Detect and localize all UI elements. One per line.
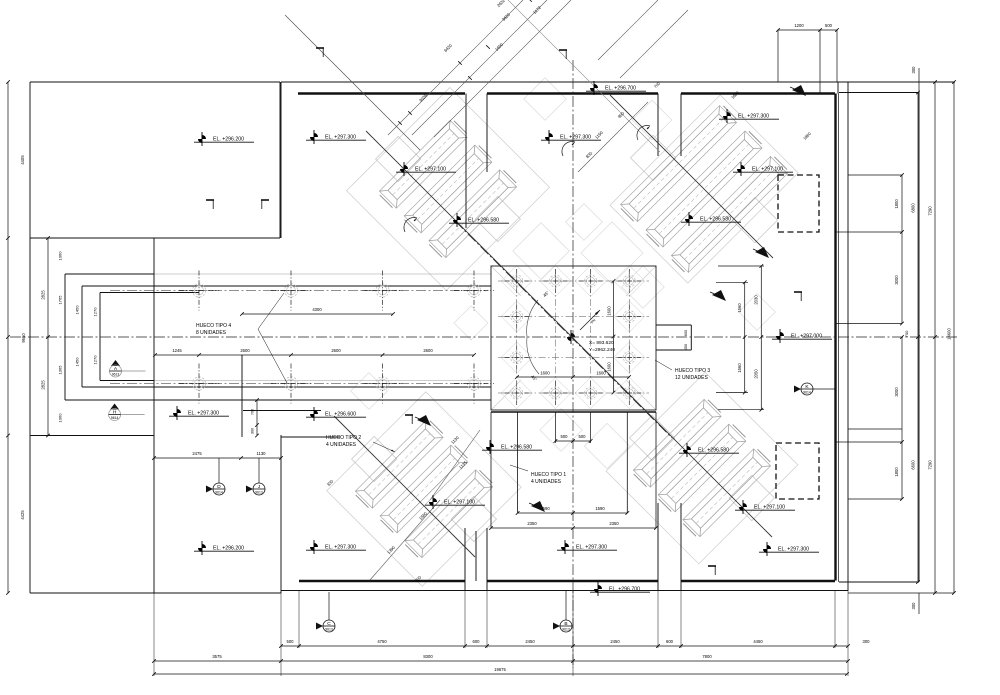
svg-text:3575: 3575 bbox=[212, 654, 222, 659]
svg-text:EL. +297.300: EL. +297.300 bbox=[778, 546, 809, 552]
svg-text:600: 600 bbox=[684, 330, 688, 336]
svg-text:EL. +296.580: EL. +296.580 bbox=[700, 216, 731, 222]
svg-text:3000: 3000 bbox=[894, 275, 899, 285]
svg-text:12 UNIDADES: 12 UNIDADES bbox=[675, 375, 708, 381]
svg-text:EL. +297.100: EL. +297.100 bbox=[444, 499, 475, 505]
svg-text:EL. +297.100: EL. +297.100 bbox=[752, 166, 783, 172]
svg-text:9614: 9614 bbox=[215, 491, 223, 495]
svg-text:1365: 1365 bbox=[58, 365, 63, 375]
svg-text:EL. +296.600: EL. +296.600 bbox=[325, 411, 356, 417]
svg-text:HUECO TIPO 2: HUECO TIPO 2 bbox=[326, 435, 361, 441]
svg-text:EL. +296.580: EL. +296.580 bbox=[468, 217, 499, 223]
svg-text:1060: 1060 bbox=[58, 413, 63, 423]
svg-text:2450: 2450 bbox=[525, 639, 535, 644]
svg-text:1560: 1560 bbox=[737, 303, 742, 313]
svg-text:EL. +296.580: EL. +296.580 bbox=[501, 444, 532, 450]
svg-text:500: 500 bbox=[287, 639, 295, 644]
svg-text:2450: 2450 bbox=[610, 639, 620, 644]
svg-text:4750: 4750 bbox=[377, 639, 387, 644]
svg-text:300: 300 bbox=[251, 428, 255, 434]
svg-text:2350: 2350 bbox=[609, 521, 619, 526]
svg-text:2475: 2475 bbox=[192, 451, 202, 456]
svg-text:1800: 1800 bbox=[894, 199, 899, 209]
svg-text:1800: 1800 bbox=[894, 467, 899, 477]
svg-text:7290: 7290 bbox=[928, 460, 933, 470]
svg-text:9613: 9613 bbox=[562, 628, 570, 632]
svg-text:300: 300 bbox=[911, 602, 916, 610]
svg-text:EL. +297.100: EL. +297.100 bbox=[754, 504, 785, 510]
svg-text:EL. +297.300: EL. +297.300 bbox=[325, 134, 356, 140]
svg-text:EL. +296.700: EL. +296.700 bbox=[605, 85, 636, 91]
svg-text:500: 500 bbox=[825, 23, 833, 28]
svg-text:EL. +296.200: EL. +296.200 bbox=[213, 136, 244, 142]
svg-text:H: H bbox=[113, 409, 117, 415]
svg-text:1270: 1270 bbox=[93, 307, 98, 317]
svg-text:C: C bbox=[327, 621, 331, 627]
svg-text:HUECO TIPO 1: HUECO TIPO 1 bbox=[531, 472, 566, 478]
svg-text:1600: 1600 bbox=[607, 362, 612, 372]
svg-text:500: 500 bbox=[561, 434, 569, 439]
svg-text:1450: 1450 bbox=[75, 305, 80, 315]
svg-text:1245: 1245 bbox=[172, 348, 182, 353]
svg-text:9613: 9613 bbox=[325, 628, 333, 632]
svg-text:EL. +297.000: EL. +297.000 bbox=[791, 333, 822, 339]
svg-text:14600: 14600 bbox=[947, 328, 952, 340]
svg-text:EL. +296.700: EL. +296.700 bbox=[609, 586, 640, 592]
svg-text:EL. +297.300: EL. +297.300 bbox=[325, 544, 356, 550]
svg-text:HUECO TIPO 3: HUECO TIPO 3 bbox=[675, 368, 710, 374]
svg-text:19675: 19675 bbox=[494, 667, 506, 672]
svg-text:EL. +297.300: EL. +297.300 bbox=[576, 544, 607, 550]
svg-text:9650: 9650 bbox=[21, 333, 26, 343]
svg-text:1600: 1600 bbox=[607, 306, 612, 316]
svg-text:EL. +297.300: EL. +297.300 bbox=[188, 410, 219, 416]
svg-text:700: 700 bbox=[251, 409, 255, 415]
svg-text:EL. +297.100: EL. +297.100 bbox=[415, 166, 446, 172]
svg-text:1765: 1765 bbox=[58, 295, 63, 305]
svg-text:1600: 1600 bbox=[540, 371, 550, 376]
svg-text:X= 893.620: X= 893.620 bbox=[589, 340, 614, 346]
svg-text:700: 700 bbox=[904, 330, 909, 337]
svg-text:8 UNIDADES: 8 UNIDADES bbox=[196, 330, 227, 336]
svg-text:EL. +297.300: EL. +297.300 bbox=[560, 134, 591, 140]
svg-text:EL. +297.300: EL. +297.300 bbox=[738, 113, 769, 119]
svg-text:2600: 2600 bbox=[240, 348, 250, 353]
svg-text:1060: 1060 bbox=[58, 251, 63, 261]
svg-text:6600: 6600 bbox=[911, 460, 916, 470]
svg-text:2600: 2600 bbox=[331, 348, 341, 353]
svg-text:1130: 1130 bbox=[256, 451, 266, 456]
svg-text:2350: 2350 bbox=[527, 521, 537, 526]
svg-text:300: 300 bbox=[863, 639, 871, 644]
svg-text:2825: 2825 bbox=[41, 380, 46, 390]
svg-text:8300: 8300 bbox=[423, 654, 433, 659]
svg-text:7290: 7290 bbox=[928, 206, 933, 216]
svg-text:9613: 9613 bbox=[112, 373, 120, 377]
svg-text:1450: 1450 bbox=[75, 357, 80, 367]
svg-text:2050: 2050 bbox=[754, 369, 759, 379]
svg-text:4300: 4300 bbox=[312, 307, 322, 312]
svg-text:HUECO TIPO 4: HUECO TIPO 4 bbox=[196, 323, 231, 329]
svg-text:D: D bbox=[217, 484, 221, 490]
svg-text:4 UNIDADES: 4 UNIDADES bbox=[531, 479, 562, 485]
svg-text:Y=2962.240: Y=2962.240 bbox=[589, 347, 615, 353]
svg-text:2825: 2825 bbox=[41, 290, 46, 300]
svg-text:1270: 1270 bbox=[93, 355, 98, 365]
svg-text:7800: 7800 bbox=[702, 654, 712, 659]
svg-text:2600: 2600 bbox=[423, 348, 433, 353]
svg-text:9613: 9613 bbox=[255, 491, 263, 495]
svg-text:1200: 1200 bbox=[794, 23, 804, 28]
svg-text:4450: 4450 bbox=[753, 639, 763, 644]
svg-text:1590: 1590 bbox=[595, 506, 605, 511]
svg-text:3000: 3000 bbox=[894, 387, 899, 397]
svg-text:9614: 9614 bbox=[111, 416, 119, 420]
svg-text:EL. +296.580: EL. +296.580 bbox=[698, 447, 729, 453]
svg-text:4425: 4425 bbox=[20, 510, 25, 520]
svg-text:2030: 2030 bbox=[754, 295, 759, 305]
svg-text:4 UNIDADES: 4 UNIDADES bbox=[326, 442, 357, 448]
svg-text:EL. +296.200: EL. +296.200 bbox=[213, 545, 244, 551]
svg-text:600: 600 bbox=[666, 639, 674, 644]
svg-text:4405: 4405 bbox=[20, 155, 25, 165]
svg-text:9614: 9614 bbox=[803, 391, 811, 395]
svg-text:B: B bbox=[564, 621, 567, 627]
svg-text:600: 600 bbox=[473, 639, 481, 644]
svg-text:1560: 1560 bbox=[737, 363, 742, 373]
svg-text:500: 500 bbox=[579, 434, 587, 439]
svg-text:450: 450 bbox=[684, 344, 688, 350]
svg-text:6800: 6800 bbox=[911, 203, 916, 213]
svg-text:300: 300 bbox=[911, 66, 916, 74]
